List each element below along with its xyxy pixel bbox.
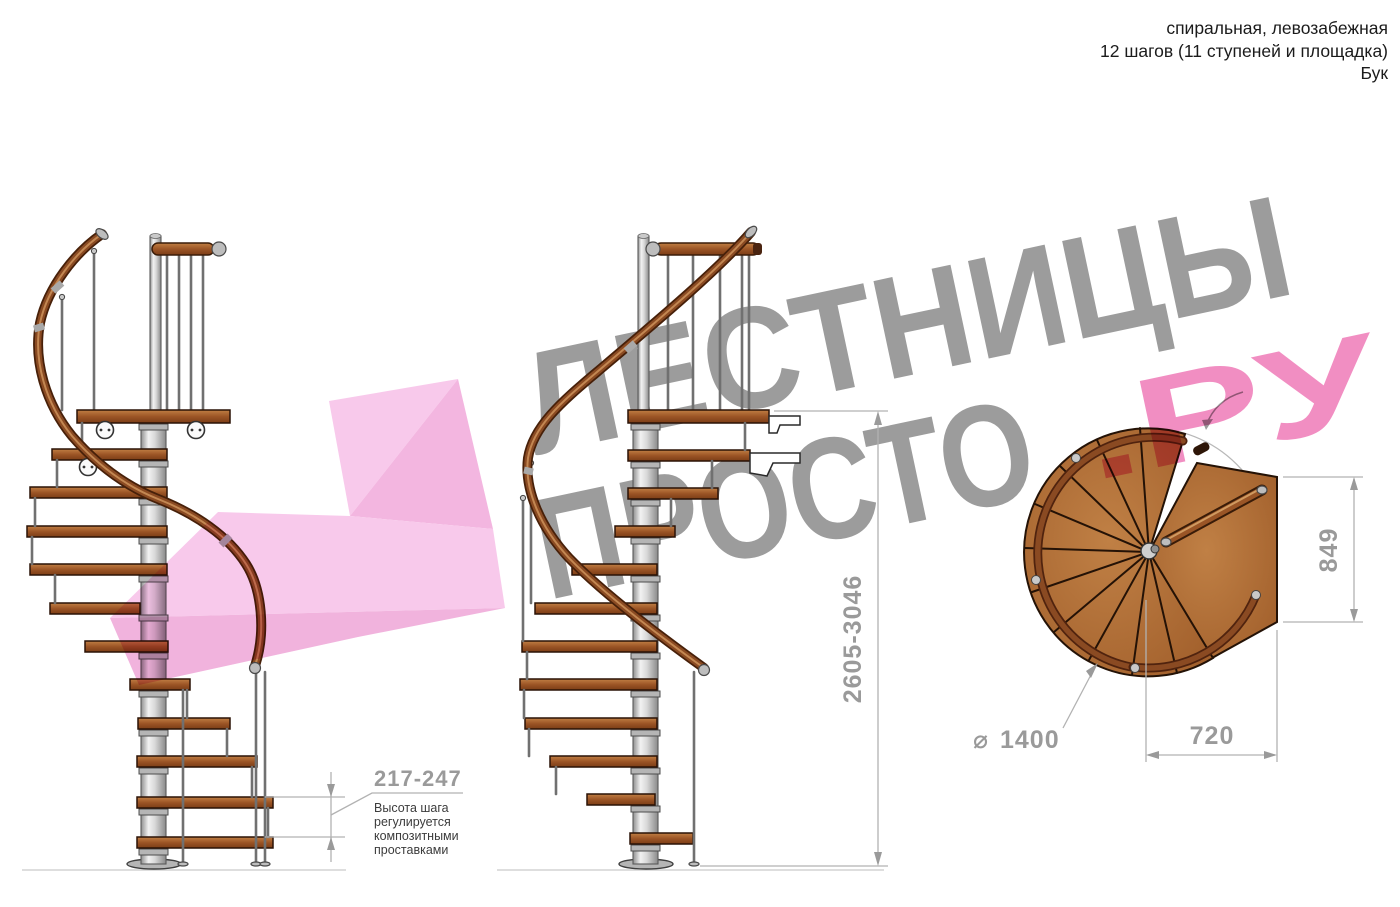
drawing-sheet: ЛЕСТНИЦЫ ПРОСТО спиральная, левозабежная… bbox=[0, 0, 1400, 907]
rail-end-cap-bottom bbox=[699, 665, 710, 676]
watermark-arrow bbox=[110, 379, 505, 685]
dim-diameter: ⌀ 1400 bbox=[973, 663, 1098, 754]
landing-platform bbox=[628, 410, 769, 423]
column-bolt bbox=[1151, 545, 1159, 553]
landing-platform bbox=[77, 410, 230, 423]
step-height-note: Высота шага bbox=[374, 801, 449, 815]
header-steps: 12 шагов (11 ступеней и площадка) bbox=[1100, 41, 1388, 61]
total-height-value: 2605-3046 bbox=[839, 575, 867, 704]
top-handrail bbox=[152, 243, 214, 255]
handrail-cap bbox=[212, 242, 226, 256]
handrail-cap bbox=[646, 242, 660, 256]
landing-depth-value: 849 bbox=[1315, 528, 1343, 573]
diameter-symbol: ⌀ bbox=[973, 726, 989, 754]
header-type: спиральная, левозабежная bbox=[1166, 18, 1388, 38]
step-height-note: композитными bbox=[374, 829, 459, 843]
dim-step-height: 217-247 Высота шага регулируется компози… bbox=[265, 766, 463, 862]
upper-balusters bbox=[59, 248, 203, 410]
handrail-end bbox=[753, 243, 762, 255]
railing-post bbox=[150, 236, 161, 414]
post-cap bbox=[638, 234, 649, 239]
header-material: Бук bbox=[1360, 63, 1388, 83]
post-cap bbox=[150, 234, 161, 239]
header-info: спиральная, левозабежная 12 шагов (11 ст… bbox=[1100, 18, 1388, 83]
rail-end-cap-bottom bbox=[250, 663, 261, 674]
landing-width-value: 720 bbox=[1190, 722, 1235, 750]
diameter-value: 1400 bbox=[1000, 726, 1060, 754]
step-height-value: 217-247 bbox=[374, 766, 462, 791]
dim-landing-depth: 849 bbox=[1283, 477, 1363, 622]
step-height-note: проставками bbox=[374, 843, 448, 857]
step-height-note: регулируется bbox=[374, 815, 451, 829]
technical-drawing: ЛЕСТНИЦЫ ПРОСТО спиральная, левозабежная… bbox=[0, 0, 1400, 907]
